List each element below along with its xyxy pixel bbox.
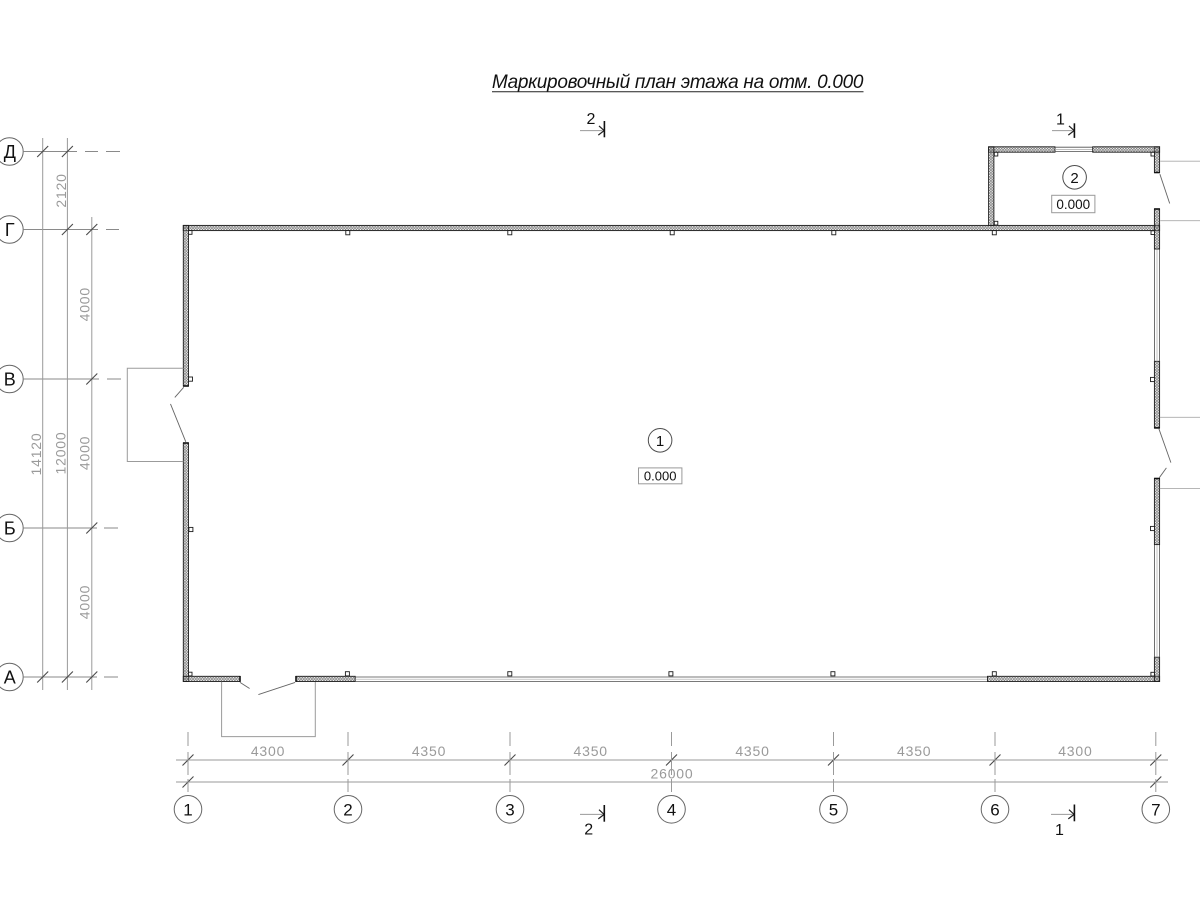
svg-text:4300: 4300 xyxy=(1058,743,1092,759)
svg-text:4350: 4350 xyxy=(735,743,769,759)
svg-text:5: 5 xyxy=(829,801,838,820)
svg-text:12000: 12000 xyxy=(53,432,69,475)
svg-text:Маркировочный план этажа на от: Маркировочный план этажа на отм. 0.000 xyxy=(492,72,864,93)
svg-text:4350: 4350 xyxy=(412,743,446,759)
svg-text:Д: Д xyxy=(4,142,16,162)
svg-text:1: 1 xyxy=(1056,111,1065,128)
svg-text:Г: Г xyxy=(5,220,15,240)
svg-text:2: 2 xyxy=(584,822,593,839)
svg-text:В: В xyxy=(4,370,16,390)
svg-text:4000: 4000 xyxy=(77,585,93,619)
svg-text:4: 4 xyxy=(667,801,676,820)
svg-text:2: 2 xyxy=(1070,170,1078,187)
svg-text:4000: 4000 xyxy=(77,436,93,470)
svg-text:4350: 4350 xyxy=(574,743,608,759)
svg-text:Б: Б xyxy=(4,519,16,539)
svg-text:14120: 14120 xyxy=(28,433,44,476)
svg-text:0.000: 0.000 xyxy=(1056,197,1090,212)
svg-text:1: 1 xyxy=(1055,822,1064,839)
svg-text:6: 6 xyxy=(990,801,999,820)
svg-text:2120: 2120 xyxy=(53,173,69,207)
svg-text:4300: 4300 xyxy=(251,743,285,759)
svg-text:3: 3 xyxy=(505,801,514,820)
svg-text:4000: 4000 xyxy=(77,287,93,321)
svg-text:0.000: 0.000 xyxy=(644,468,677,483)
svg-text:1: 1 xyxy=(183,801,192,820)
svg-text:А: А xyxy=(4,668,16,688)
svg-text:4350: 4350 xyxy=(897,743,931,759)
svg-text:2: 2 xyxy=(587,111,596,128)
svg-text:2: 2 xyxy=(343,801,352,820)
svg-text:7: 7 xyxy=(1151,801,1160,820)
svg-text:1: 1 xyxy=(656,433,664,450)
